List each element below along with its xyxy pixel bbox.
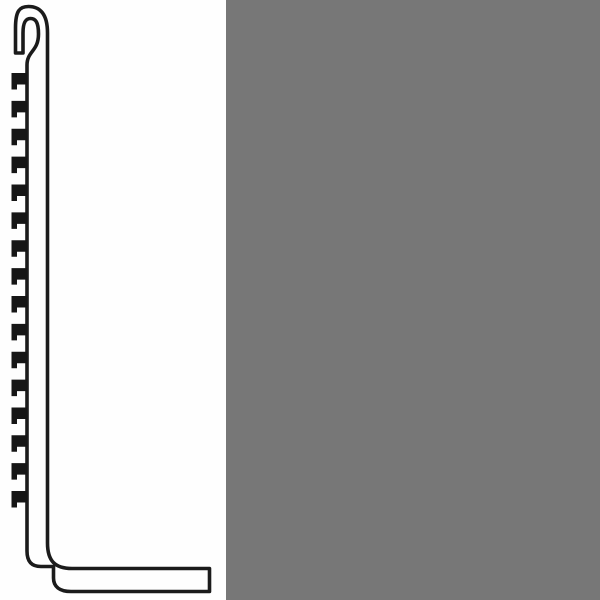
profile-rib xyxy=(12,407,28,424)
profile-rib xyxy=(12,212,28,229)
profile-rib xyxy=(12,463,28,480)
profile-rib xyxy=(12,324,28,341)
profile-rib xyxy=(12,352,28,369)
profile-rib xyxy=(12,296,28,313)
profile-rib xyxy=(12,129,28,146)
profile-cross-section-drawing xyxy=(0,0,226,600)
profile-rib xyxy=(12,184,28,201)
profile-rib xyxy=(12,240,28,257)
diagram-area xyxy=(0,0,226,600)
profile-rib xyxy=(12,157,28,174)
profile-ribs-group xyxy=(12,73,28,508)
profile-rib xyxy=(12,491,28,508)
profile-rib xyxy=(12,73,28,90)
profile-outline-path xyxy=(16,7,210,592)
profile-rib xyxy=(12,101,28,118)
screenshot-root xyxy=(0,0,600,600)
profile-rib xyxy=(12,268,28,285)
profile-rib xyxy=(12,380,28,397)
profile-rib xyxy=(12,435,28,452)
gray-panel xyxy=(226,0,600,600)
